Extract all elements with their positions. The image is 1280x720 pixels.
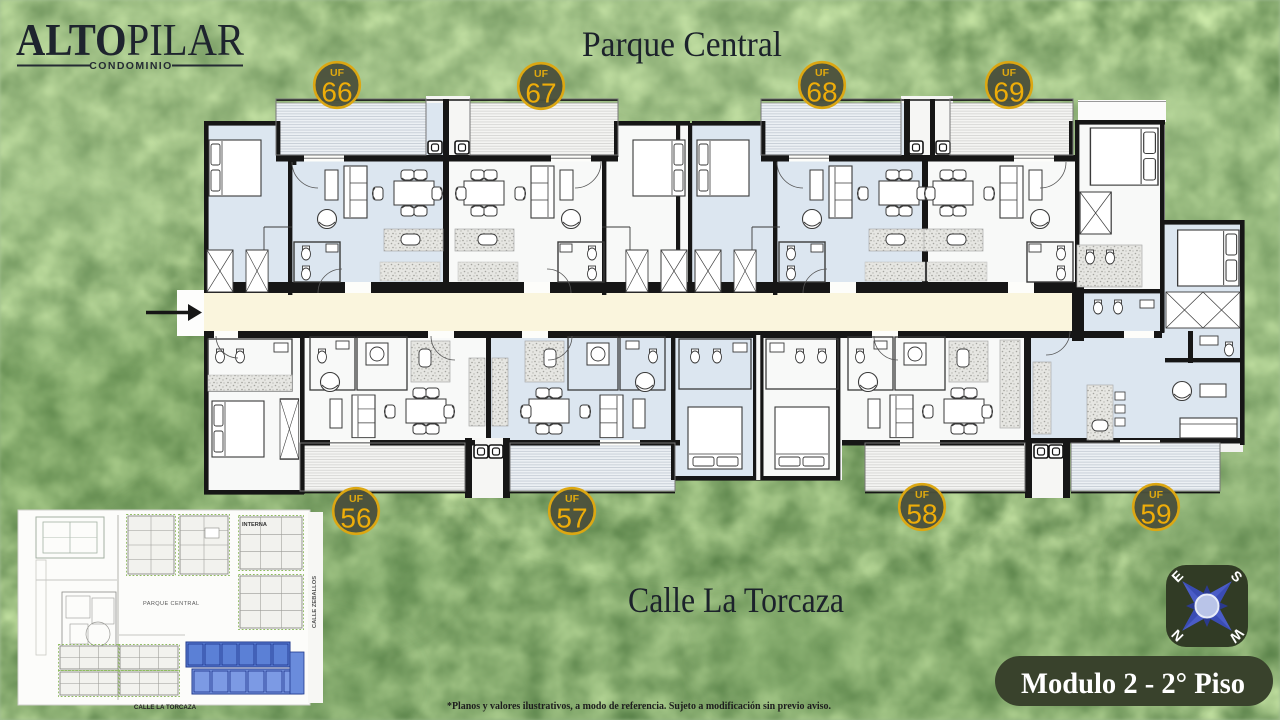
svg-text:CALLE ZEBALLOS: CALLE ZEBALLOS	[312, 576, 318, 628]
svg-text:Parque Central: Parque Central	[582, 24, 782, 64]
svg-text:57: 57	[556, 503, 587, 534]
svg-text:PARQUE CENTRAL: PARQUE CENTRAL	[143, 601, 199, 607]
svg-text:CONDOMINIO: CONDOMINIO	[89, 60, 172, 72]
svg-text:58: 58	[906, 499, 937, 530]
svg-text:66: 66	[321, 77, 352, 108]
svg-text:CALLE LA TORCAZA: CALLE LA TORCAZA	[134, 704, 197, 711]
svg-text:69: 69	[993, 77, 1024, 108]
svg-text:Calle La Torcaza: Calle La Torcaza	[628, 580, 844, 620]
svg-text:*Planos y valores ilustrativos: *Planos y valores ilustrativos, a modo d…	[447, 701, 831, 712]
svg-text:67: 67	[525, 78, 556, 109]
svg-text:59: 59	[1140, 499, 1171, 530]
svg-text:Modulo 2 - 2° Piso: Modulo 2 - 2° Piso	[1021, 667, 1245, 700]
svg-text:ALTOPILAR: ALTOPILAR	[16, 14, 244, 65]
svg-text:INTERNA: INTERNA	[242, 522, 267, 528]
svg-text:68: 68	[806, 77, 837, 108]
svg-text:56: 56	[340, 503, 371, 534]
